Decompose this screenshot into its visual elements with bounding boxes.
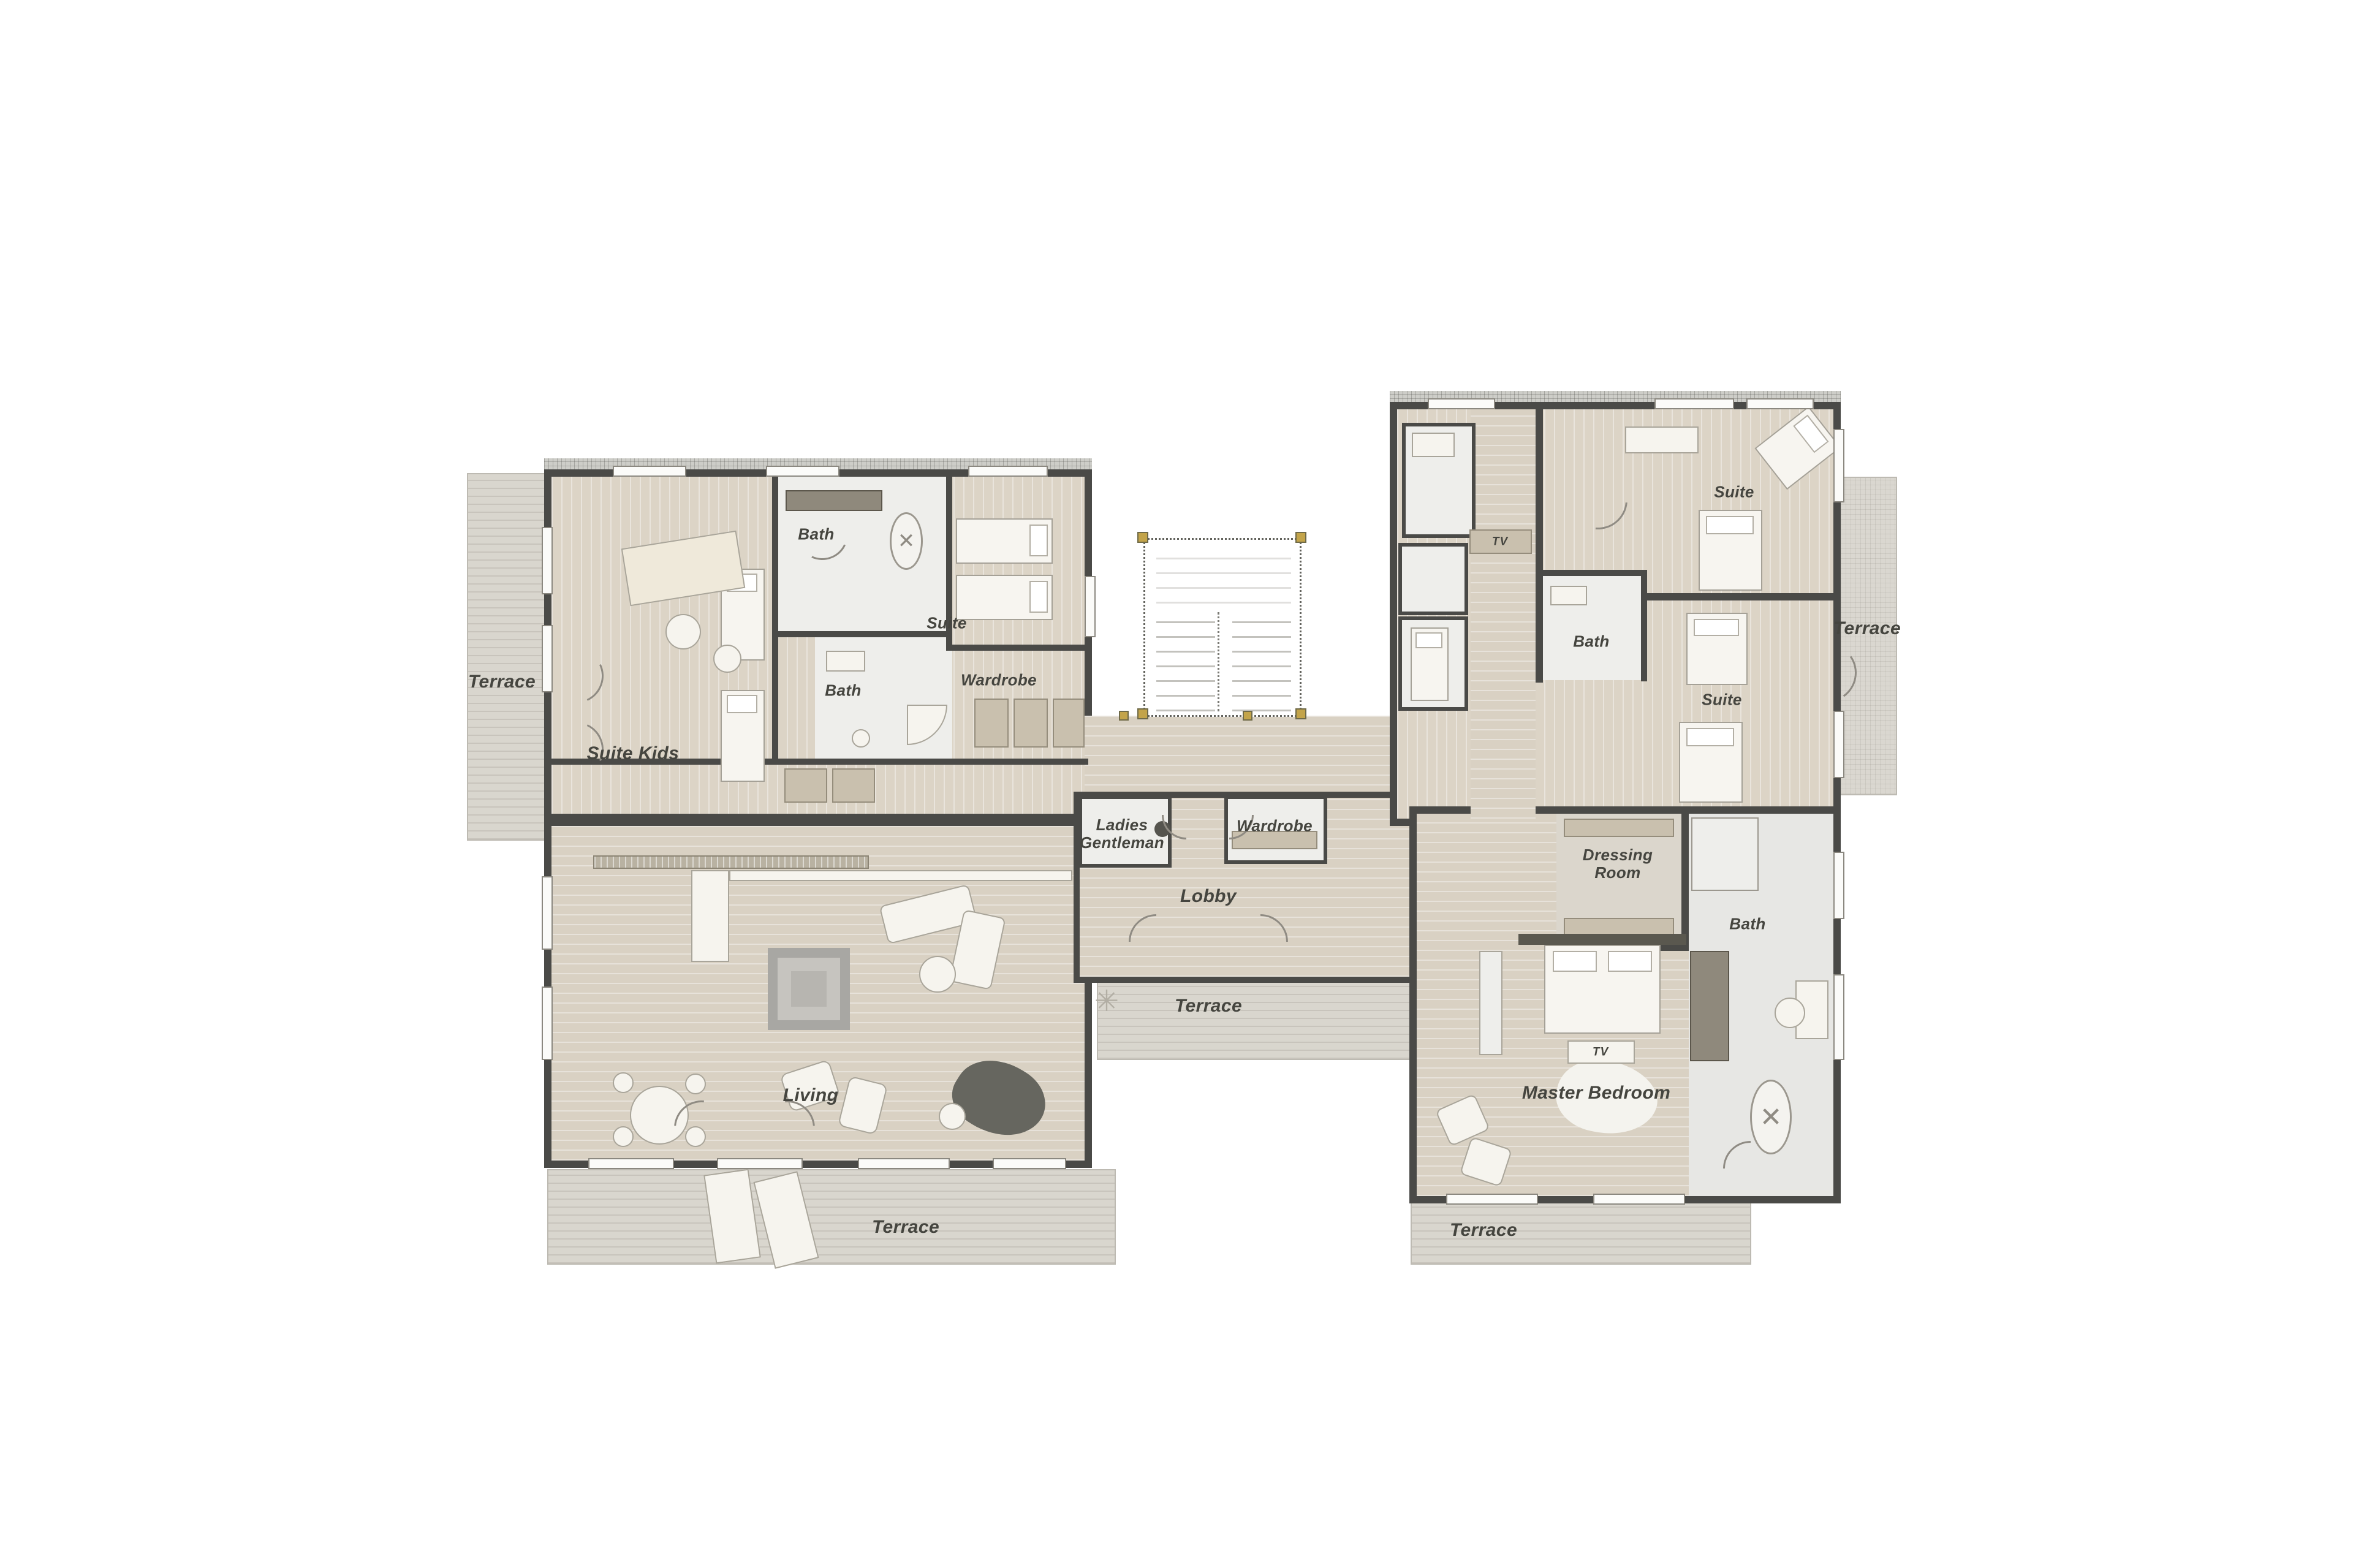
pillow	[1553, 951, 1597, 972]
closet	[784, 768, 827, 803]
label-gentleman: Gentleman	[1080, 833, 1164, 852]
stair-corner-post	[1137, 532, 1148, 543]
suite-bed	[956, 575, 1053, 620]
kids-chair	[713, 645, 741, 673]
window	[1833, 429, 1844, 502]
pillow	[1706, 516, 1754, 534]
suite-bed	[1699, 510, 1762, 591]
stair-flight	[1156, 612, 1215, 711]
right-wing-corridor	[1471, 409, 1536, 819]
kids-bed	[721, 690, 765, 782]
corridor-post	[1119, 711, 1129, 721]
window	[717, 1158, 803, 1169]
stair-landing	[1156, 551, 1291, 604]
desk	[1412, 433, 1455, 457]
service-room	[1402, 423, 1476, 538]
label-terrace-bottom-right: Terrace	[1450, 1220, 1517, 1241]
terrace-bottom-left	[547, 1169, 1116, 1265]
washbasin	[1550, 586, 1587, 605]
washbasin	[826, 651, 865, 672]
pillow	[1029, 581, 1048, 613]
label-living: Living	[783, 1085, 839, 1106]
window	[542, 987, 553, 1060]
pillow	[727, 695, 757, 713]
label-wardrobe-lobby: Wardrobe	[1237, 817, 1313, 835]
corridor-post	[1243, 711, 1252, 721]
closet	[1053, 699, 1085, 748]
master-bed	[1544, 945, 1661, 1034]
label-bath-master: Bath	[1729, 915, 1765, 933]
label-tv-master: TV	[1593, 1045, 1608, 1058]
pillow	[1415, 632, 1442, 648]
dining-chair	[613, 1126, 634, 1147]
window	[1833, 974, 1844, 1060]
partition-wall	[772, 477, 778, 763]
toilet	[852, 729, 870, 748]
closet	[832, 768, 875, 803]
partition-wall	[1536, 409, 1543, 683]
pillar-closet	[1479, 951, 1502, 1055]
window	[1085, 576, 1096, 637]
window	[1654, 398, 1734, 409]
floor-plan-canvas: ✕ ✳	[0, 0, 2353, 1568]
service-room	[1398, 543, 1468, 615]
stair-divider	[1218, 612, 1220, 711]
pillow	[1029, 525, 1048, 556]
label-lobby: Lobby	[1180, 886, 1237, 907]
label-bath-inner: Bath	[825, 681, 861, 699]
label-dressing-room: Dressing Room	[1583, 846, 1653, 882]
desk	[1625, 426, 1699, 453]
vanity-counter	[786, 490, 882, 511]
terrace-central	[1097, 980, 1414, 1060]
kitchen-counter	[691, 870, 729, 962]
label-suite-right-bottom: Suite	[1702, 691, 1742, 708]
stair-core	[1143, 538, 1302, 717]
label-terrace-bottom-left: Terrace	[872, 1217, 939, 1238]
stair-flight	[1232, 612, 1291, 711]
window	[1833, 852, 1844, 919]
terrace-left	[467, 473, 545, 841]
label-ladies-gentleman: Ladies Gentleman	[1080, 816, 1164, 852]
pillow	[1686, 728, 1734, 746]
kitchen-bar	[729, 870, 1072, 881]
stair-corner-post	[1295, 532, 1306, 543]
window	[613, 466, 686, 477]
label-terrace-left: Terrace	[468, 672, 536, 692]
window	[1593, 1194, 1685, 1205]
label-terrace-center: Terrace	[1175, 996, 1242, 1017]
closet	[974, 699, 1009, 748]
kitchen-sideboard	[593, 855, 869, 869]
label-master-bedroom: Master Bedroom	[1522, 1083, 1670, 1104]
headboard-wall	[1518, 934, 1686, 945]
window	[1446, 1194, 1538, 1205]
partition-wall	[1543, 570, 1646, 576]
window	[766, 466, 839, 477]
label-suite-left: Suite	[926, 614, 967, 632]
vanity-stool	[1775, 998, 1805, 1028]
label-bath-right: Bath	[1573, 632, 1609, 650]
stair-corner-post	[1295, 708, 1306, 719]
shower-room	[1691, 817, 1759, 891]
stair-corner-post	[1137, 708, 1148, 719]
window	[993, 1158, 1066, 1169]
label-bath-kids: Bath	[798, 525, 834, 543]
window	[1746, 398, 1814, 409]
piano-bench	[939, 1103, 966, 1130]
suite-bed	[1679, 722, 1743, 803]
pillow	[1694, 619, 1739, 636]
window	[588, 1158, 674, 1169]
pillow	[1608, 951, 1652, 972]
label-dressing-line1: Dressing	[1583, 846, 1653, 864]
suite-bed	[1686, 613, 1748, 685]
window	[542, 625, 553, 692]
window	[1833, 711, 1844, 778]
coffee-table	[919, 956, 956, 993]
wardrobe-column	[1690, 951, 1729, 1061]
window	[1428, 398, 1495, 409]
dining-chair	[613, 1072, 634, 1093]
window	[542, 876, 553, 950]
living-rug-center	[791, 971, 827, 1007]
parasol-icon: ✳	[1094, 984, 1119, 1018]
service-room	[1398, 616, 1468, 711]
kids-chair	[665, 614, 701, 650]
partition-wall	[777, 631, 952, 637]
partition-wall	[1641, 570, 1647, 681]
gallery-corridor	[1085, 716, 1397, 795]
bathtub: ✕	[890, 512, 923, 570]
closet	[1014, 699, 1048, 748]
partition-wall	[1681, 814, 1689, 949]
partition-wall	[1645, 593, 1833, 600]
label-dressing-line2: Room	[1594, 863, 1640, 882]
dining-chair	[685, 1074, 706, 1094]
window	[858, 1158, 950, 1169]
label-wardrobe-left: Wardrobe	[961, 671, 1037, 689]
label-tv-corridor: TV	[1492, 535, 1508, 548]
label-terrace-right: Terrace	[1833, 618, 1901, 639]
window	[968, 466, 1048, 477]
label-suite-right-top: Suite	[1714, 483, 1754, 501]
window	[542, 527, 553, 594]
suite-bed	[956, 518, 1053, 564]
partition-wall	[946, 645, 1092, 651]
living-rug	[768, 948, 850, 1030]
label-suite-kids: Suite Kids	[587, 743, 680, 764]
bed	[1411, 627, 1449, 701]
dressing-closet	[1564, 819, 1674, 837]
label-ladies: Ladies	[1096, 816, 1148, 834]
